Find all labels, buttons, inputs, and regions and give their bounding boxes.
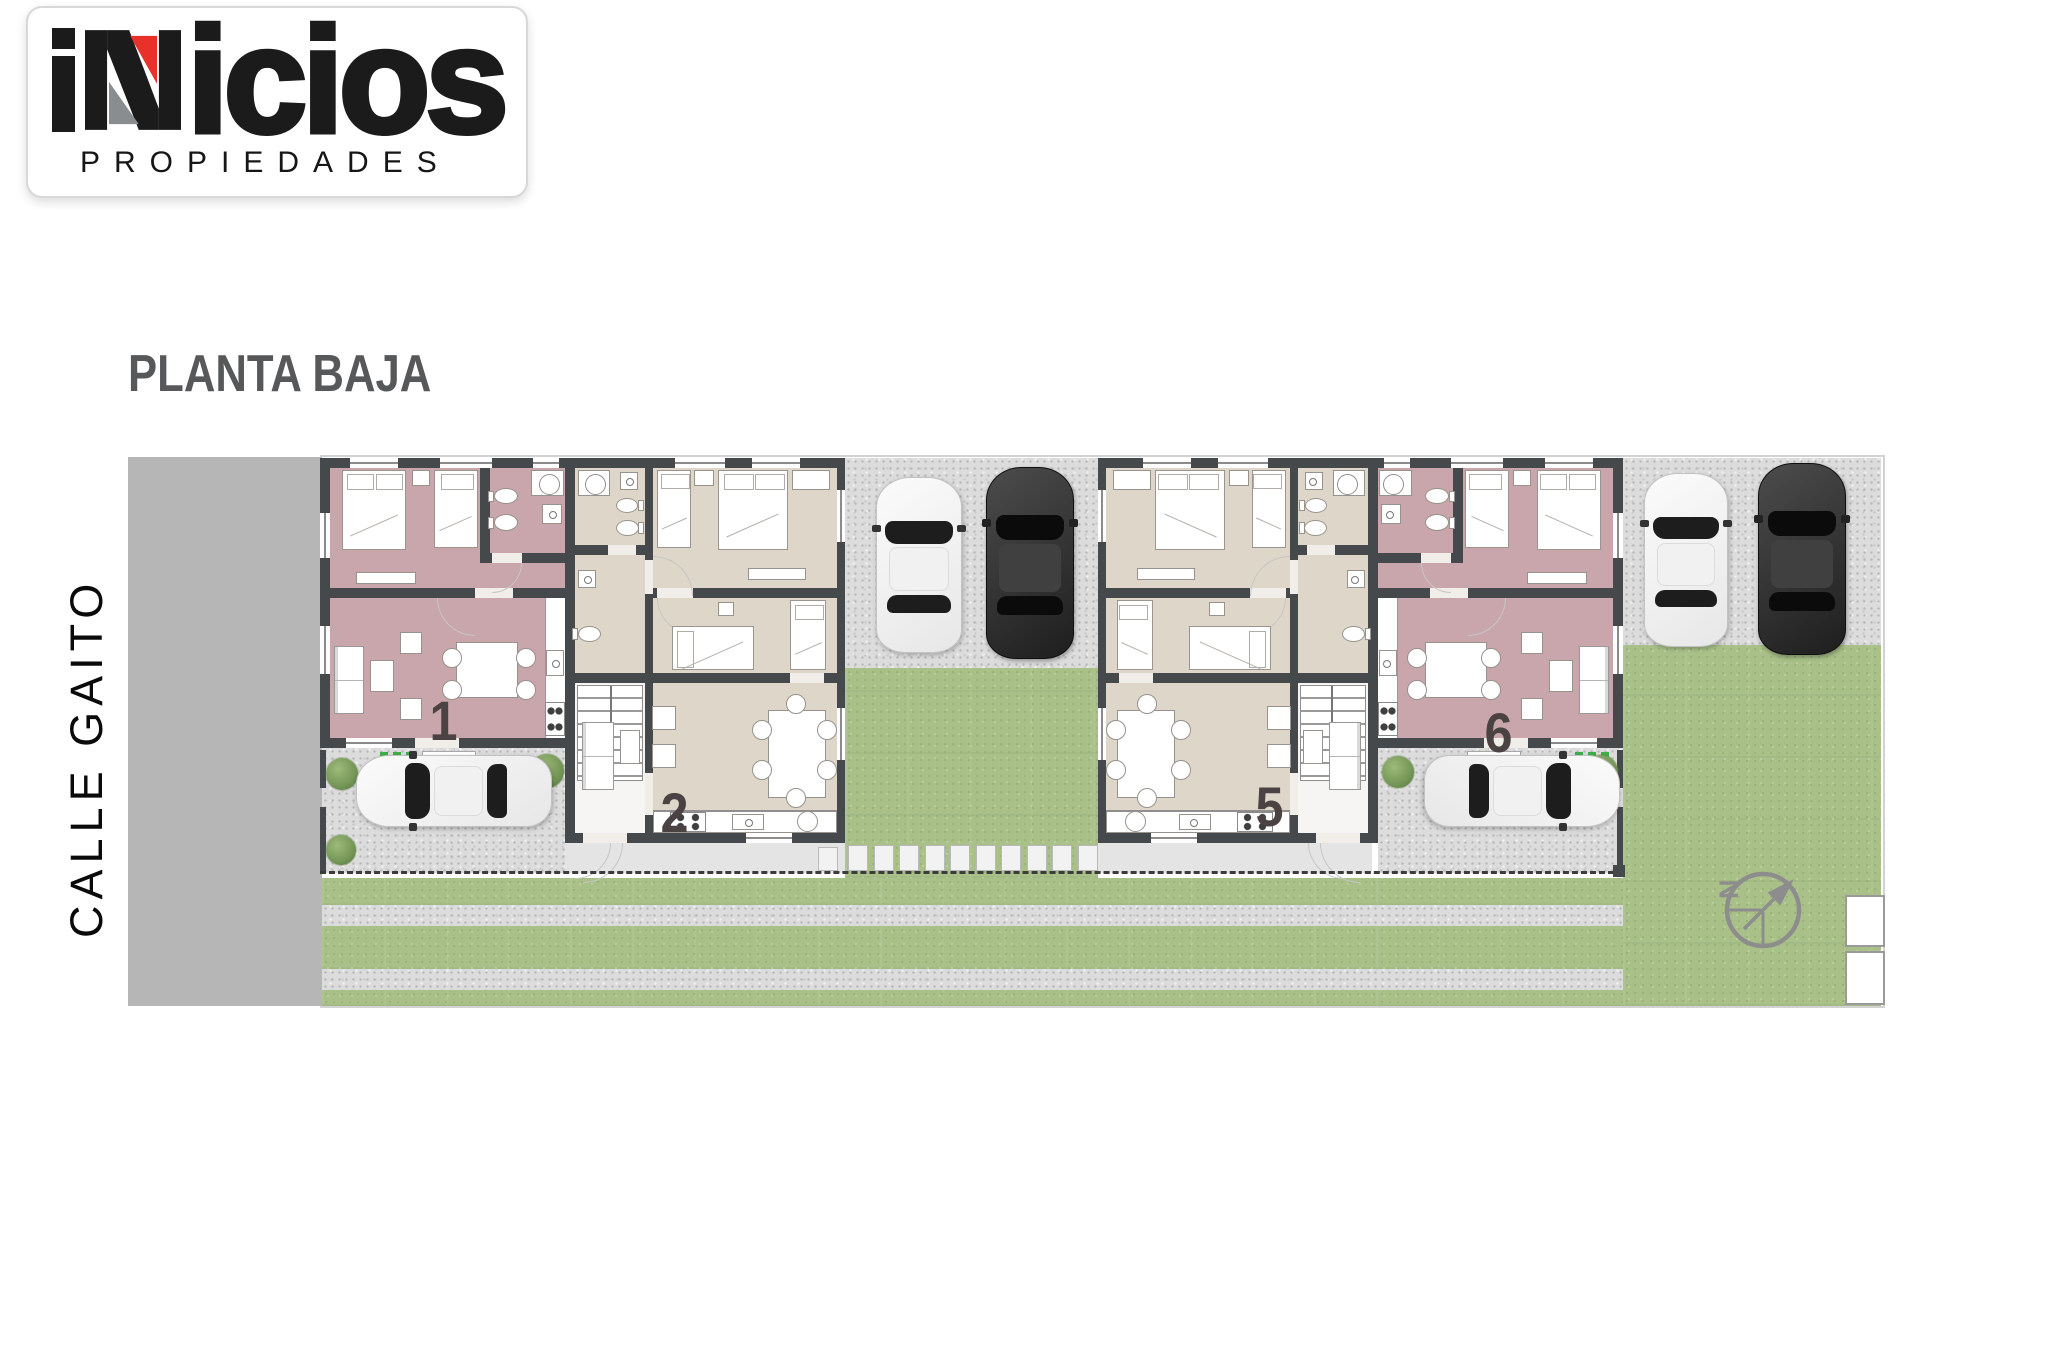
armchair — [1521, 698, 1543, 720]
backyard-gravel-path — [322, 969, 1623, 990]
sofa — [334, 646, 364, 714]
bathroom-sink — [578, 570, 596, 588]
toilet-tank — [1299, 522, 1305, 534]
toilet — [1304, 520, 1327, 536]
wall — [575, 673, 645, 683]
wall — [565, 738, 575, 843]
bathroom-sink — [542, 504, 562, 524]
backyard-lawn-strip — [322, 990, 1623, 1006]
car-white-middle — [876, 477, 962, 653]
toilet-tank — [1449, 491, 1455, 502]
door-opening — [645, 560, 653, 594]
armchair — [400, 698, 422, 720]
fence — [320, 807, 326, 873]
kitchen-sink — [546, 650, 564, 676]
wall — [645, 468, 653, 555]
compass-rose-icon: N — [1708, 853, 1818, 963]
sofa — [582, 722, 614, 790]
stepping-stones — [848, 845, 1098, 871]
coffee-table — [370, 660, 394, 692]
toilet-tank — [638, 522, 644, 534]
logo-letters-icios: icios — [187, 5, 504, 155]
window — [346, 738, 392, 748]
door-opening — [645, 773, 653, 815]
wall — [1368, 468, 1378, 738]
door-opening — [1290, 560, 1298, 594]
window — [752, 458, 800, 468]
toilet — [616, 520, 639, 536]
window — [1551, 738, 1597, 748]
patio-step — [1845, 951, 1885, 1005]
property-dashed-line — [320, 871, 1623, 874]
window — [320, 513, 330, 558]
bathroom-sink — [1381, 504, 1401, 524]
dining-table — [1425, 642, 1487, 698]
toilet — [1425, 514, 1449, 531]
bathroom-vanity — [531, 470, 564, 496]
compass-n-label: N — [1714, 880, 1744, 900]
logo-tagline: PROPIEDADES — [80, 146, 451, 180]
car-black-right — [1758, 463, 1846, 655]
single-bed — [1465, 470, 1509, 548]
window — [837, 708, 845, 760]
window — [1218, 458, 1268, 468]
logo-letter-n-icon — [85, 28, 181, 132]
dining-chair — [1106, 760, 1126, 780]
sofa — [1329, 722, 1361, 790]
window — [1151, 833, 1197, 843]
armchair — [400, 632, 422, 654]
armchair — [1267, 706, 1291, 730]
double-bed — [1155, 470, 1225, 550]
door-opening — [1421, 553, 1451, 563]
nightstand — [718, 602, 734, 616]
car-white-unit1 — [356, 755, 552, 827]
window — [350, 458, 398, 468]
side-table — [620, 730, 640, 764]
backyard-gravel-path — [322, 905, 1623, 926]
dining-table — [456, 642, 518, 698]
armchair — [652, 706, 676, 730]
window — [1098, 708, 1106, 760]
bush — [1382, 756, 1414, 788]
bathroom-vanity — [578, 470, 610, 496]
dresser — [1527, 572, 1587, 584]
wall — [1290, 468, 1298, 555]
dining-chair — [1481, 648, 1501, 668]
single-bed — [672, 626, 754, 670]
single-bed — [1189, 626, 1271, 670]
bidet — [494, 488, 518, 504]
dining-chair — [1407, 680, 1427, 700]
bidet — [616, 498, 638, 513]
backyard-lawn-strip — [322, 926, 1623, 969]
dining-chair — [817, 760, 837, 780]
door-opening — [1119, 673, 1153, 683]
logo-letter-i — [52, 28, 75, 132]
dining-chair — [1137, 694, 1157, 714]
window — [1613, 626, 1623, 674]
wardrobe — [1113, 470, 1151, 490]
window — [1613, 513, 1623, 558]
nightstand — [412, 470, 430, 486]
fence-corner-post — [1613, 865, 1625, 877]
window — [440, 458, 492, 468]
bidet — [1305, 498, 1327, 513]
car-white-unit6 — [1424, 755, 1620, 827]
wall — [320, 458, 330, 748]
dining-chair — [1171, 720, 1191, 740]
dresser — [356, 572, 416, 584]
unit-label-6: 6 — [1485, 705, 1513, 761]
laundry-basin — [1125, 811, 1146, 832]
street-block — [128, 457, 322, 1006]
dining-chair — [817, 720, 837, 740]
nightstand — [1229, 470, 1249, 486]
armchair — [652, 744, 676, 768]
window — [533, 458, 559, 468]
bathroom-sink — [1347, 570, 1365, 588]
window — [1545, 458, 1593, 468]
wall — [1378, 588, 1613, 598]
bush — [326, 835, 356, 865]
sofa — [1579, 646, 1609, 714]
wall — [480, 468, 490, 563]
door-opening — [1307, 545, 1335, 555]
dining-chair — [442, 648, 462, 668]
logo-wordmark: icios — [52, 24, 504, 132]
single-bed — [657, 470, 691, 548]
door-opening — [608, 545, 636, 555]
unit-label-2: 2 — [661, 785, 689, 841]
window — [1451, 458, 1503, 468]
nightstand — [694, 470, 714, 486]
nightstand — [1513, 470, 1531, 486]
page-title: PLANTA BAJA — [128, 344, 431, 404]
kitchen-sink — [1179, 814, 1211, 830]
window — [1098, 490, 1106, 542]
window — [675, 458, 725, 468]
stove-burners — [1378, 702, 1398, 736]
fence — [320, 750, 326, 788]
toilet-tank — [1299, 500, 1305, 511]
wardrobe — [792, 470, 830, 490]
single-bed — [1252, 470, 1286, 548]
door-opening — [790, 673, 824, 683]
toilet-tank — [488, 491, 494, 502]
coffee-table — [1549, 660, 1573, 692]
dining-chair — [786, 788, 806, 808]
wall — [1298, 673, 1368, 683]
backyard-lawn-strip — [322, 878, 1623, 905]
wall — [1613, 458, 1623, 748]
dining-table — [768, 710, 826, 798]
patio-step — [1845, 895, 1885, 947]
dresser — [748, 568, 806, 580]
car-white-right — [1644, 473, 1728, 647]
door-opening — [1316, 833, 1360, 843]
logo: icios PROPIEDADES — [26, 6, 528, 198]
armchair — [1521, 632, 1543, 654]
door-opening — [1290, 773, 1298, 815]
toilet — [1342, 626, 1365, 642]
door-opening — [492, 553, 522, 563]
dining-chair — [752, 760, 772, 780]
dining-chair — [1106, 720, 1126, 740]
bathroom-sink — [1305, 472, 1323, 490]
window — [320, 626, 330, 674]
toilet-tank — [1449, 517, 1455, 529]
unit-label-5: 5 — [1256, 779, 1284, 835]
unit-label-1: 1 — [430, 693, 458, 749]
street-label: CALLE GAITO — [54, 575, 120, 940]
toilet — [494, 514, 518, 531]
wall — [1453, 468, 1463, 563]
dining-chair — [1171, 760, 1191, 780]
nightstand — [1209, 602, 1225, 616]
kitchen-sink — [732, 814, 764, 830]
stove-burners — [545, 702, 565, 736]
toilet-tank — [572, 628, 578, 640]
bathroom-vanity — [1379, 470, 1412, 496]
dining-chair — [1481, 680, 1501, 700]
floor-plan-page: icios PROPIEDADES PLANTA BAJA CALLE GAIT… — [0, 0, 2048, 1365]
stepping-stone — [818, 847, 838, 871]
dining-chair — [752, 720, 772, 740]
armchair — [1267, 744, 1291, 768]
single-bed — [790, 600, 826, 670]
window — [837, 490, 845, 542]
dining-chair — [516, 680, 536, 700]
dining-chair — [786, 694, 806, 714]
wall — [565, 468, 575, 738]
window — [1384, 458, 1410, 468]
dining-chair — [516, 648, 536, 668]
double-bed — [718, 470, 788, 550]
window — [746, 833, 792, 843]
laundry-basin — [797, 811, 818, 832]
bidet — [1425, 488, 1449, 504]
car-black-middle — [986, 467, 1074, 659]
dining-chair — [1137, 788, 1157, 808]
toilet-tank — [1365, 628, 1371, 640]
toilet-tank — [638, 500, 644, 511]
bathroom-vanity — [1333, 470, 1365, 496]
wall — [1368, 738, 1378, 843]
single-bed — [434, 470, 478, 548]
toilet — [578, 626, 601, 642]
dresser — [1137, 568, 1195, 580]
dining-table — [1117, 710, 1175, 798]
wall — [330, 588, 565, 598]
double-bed — [342, 470, 406, 550]
dining-chair — [1407, 648, 1427, 668]
site-plan: 1 2 5 6 N — [128, 455, 1890, 1012]
bathroom-sink — [620, 472, 638, 490]
toilet-tank — [488, 517, 494, 529]
side-table — [1303, 730, 1323, 764]
double-bed — [1537, 470, 1601, 550]
bush — [326, 758, 358, 790]
window — [1143, 458, 1191, 468]
kitchen-sink — [1379, 650, 1397, 676]
door-opening — [583, 833, 627, 843]
single-bed — [1117, 600, 1153, 670]
